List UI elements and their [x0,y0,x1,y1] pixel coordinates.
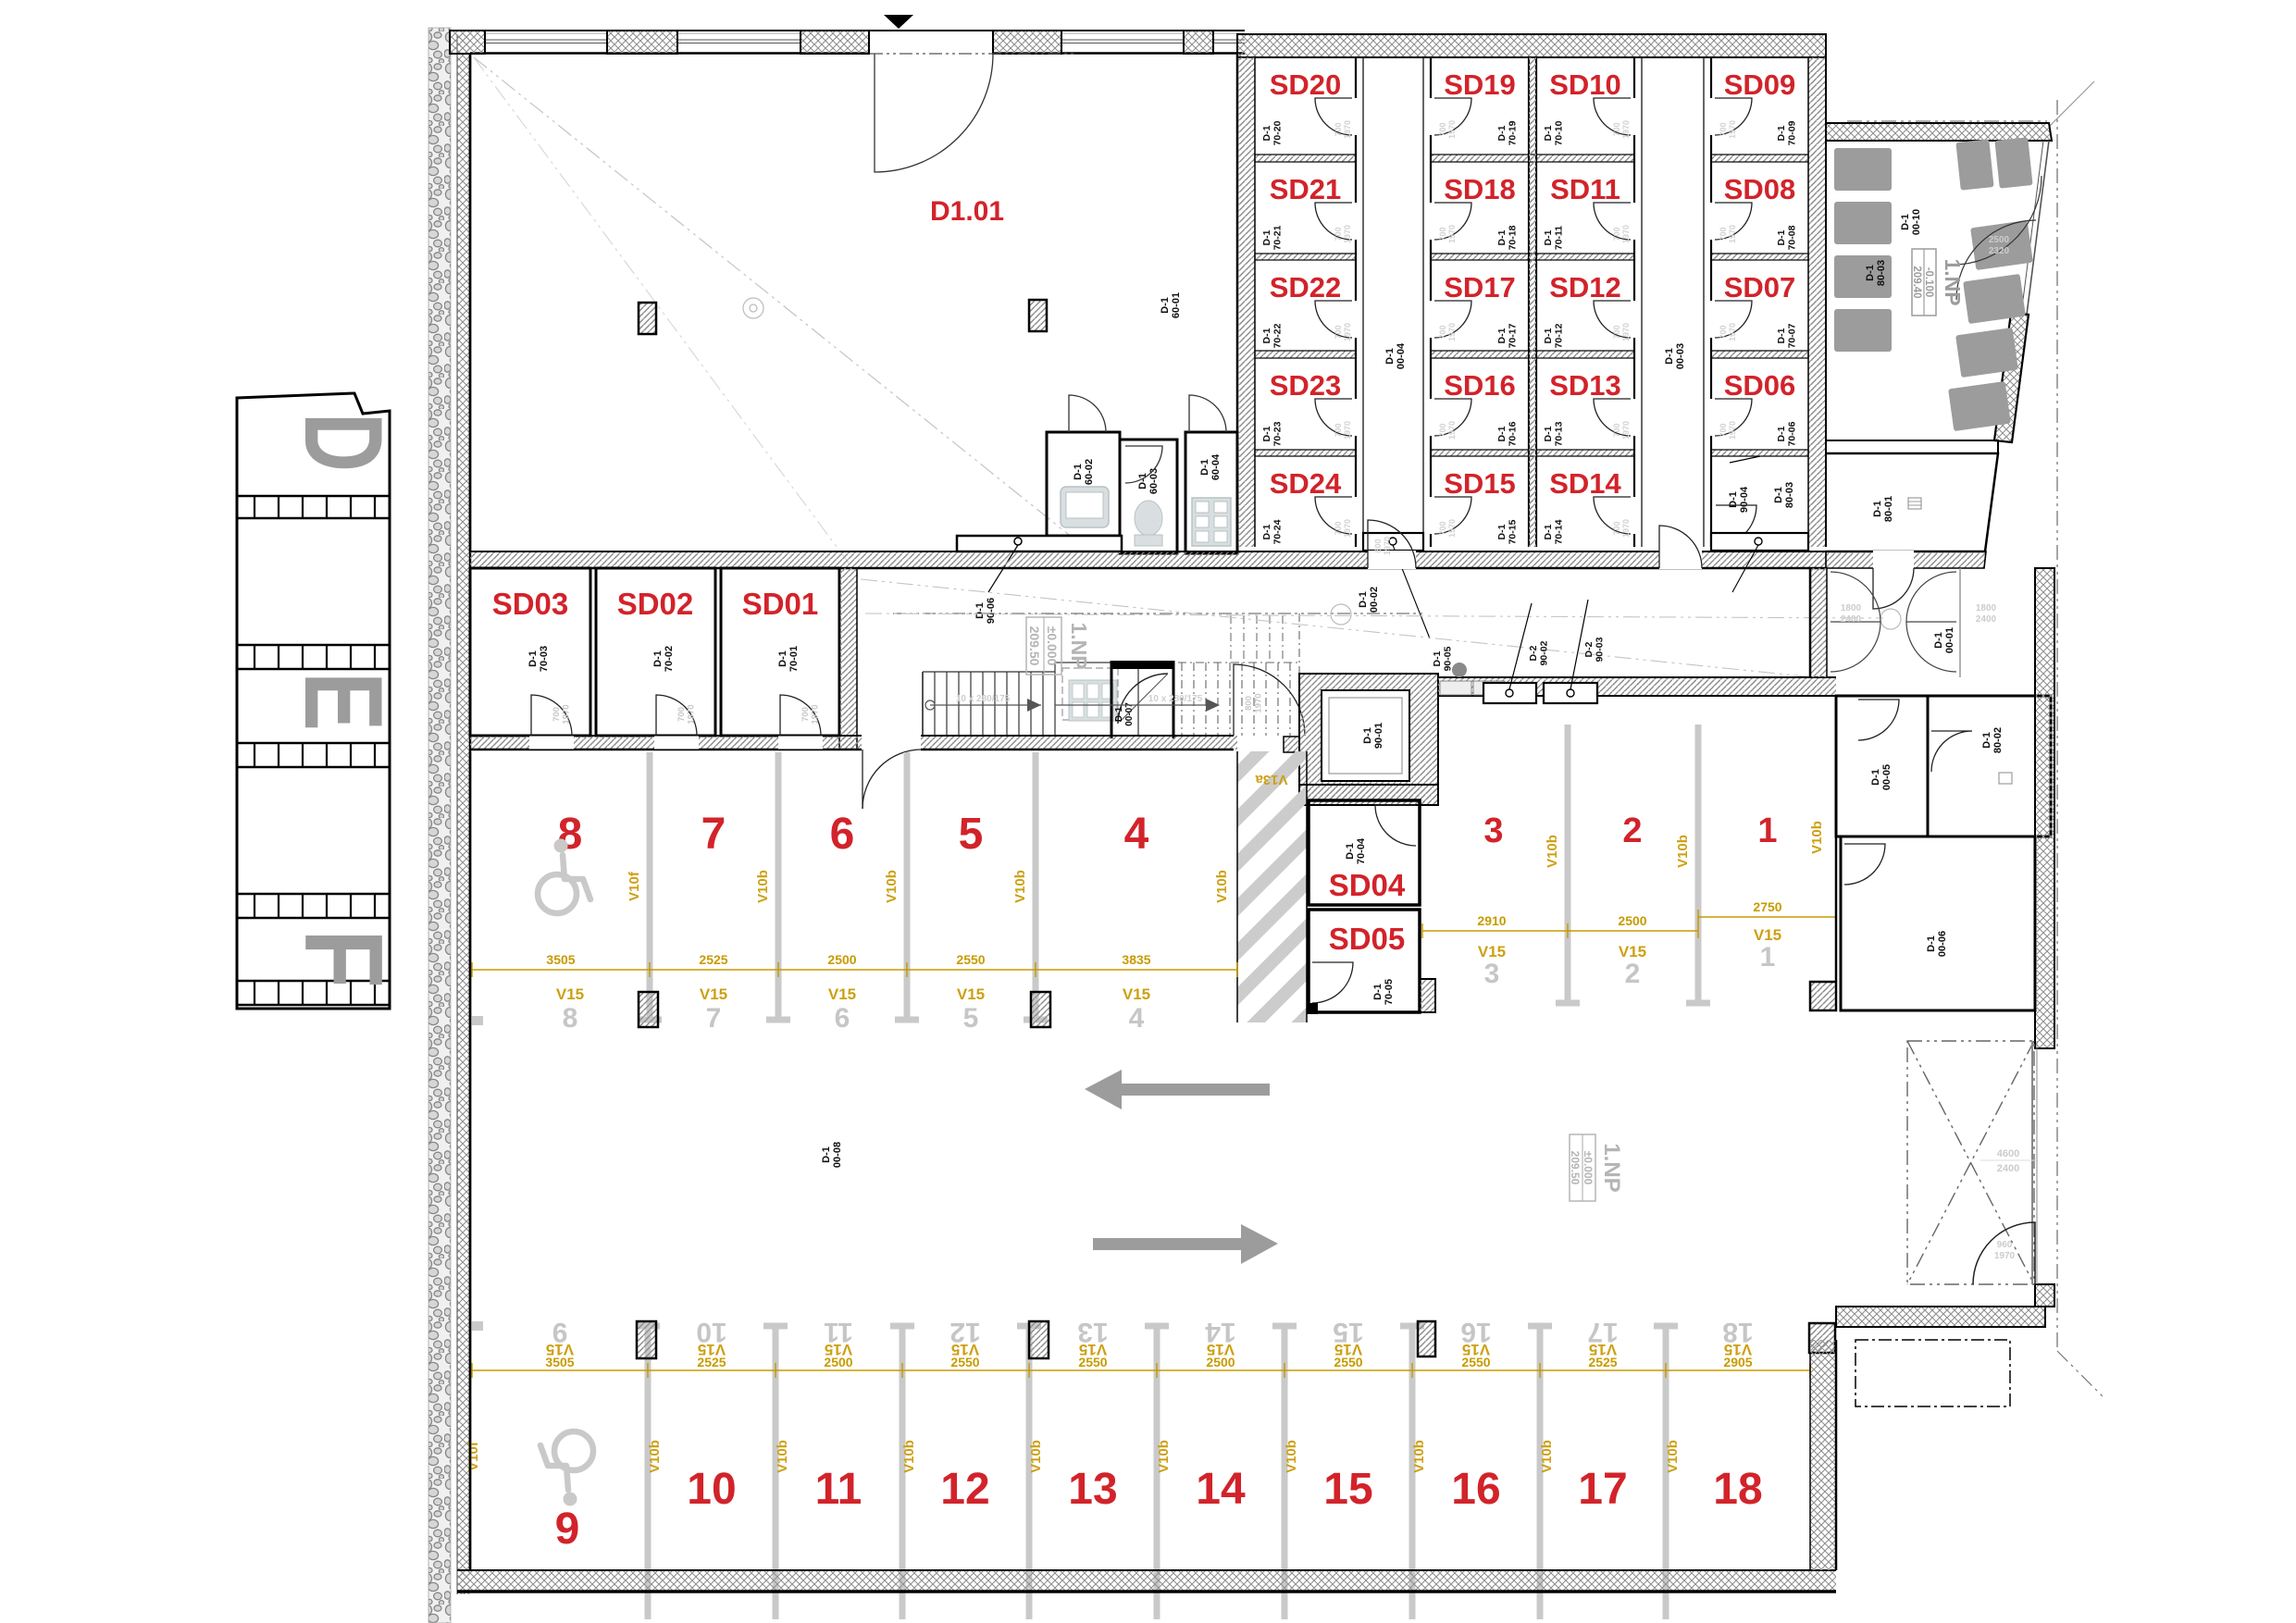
svg-text:16: 16 [1451,1465,1500,1514]
svg-text:12: 12 [940,1465,989,1514]
svg-text:D-1: D-1 [1496,524,1508,539]
svg-text:D-1: D-1 [1160,297,1171,314]
svg-text:10: 10 [687,1465,736,1514]
svg-text:D-1: D-1 [777,650,788,667]
svg-text:1970: 1970 [562,704,572,724]
svg-text:2550: 2550 [1078,1355,1107,1369]
svg-text:70-12: 70-12 [1554,323,1565,348]
svg-text:1800: 1800 [1841,603,1862,613]
svg-text:-0.100: -0.100 [1923,267,1934,298]
svg-text:60-01: 60-01 [1171,292,1182,318]
svg-text:3505: 3505 [546,952,575,967]
svg-text:SD02: SD02 [617,587,694,621]
svg-text:700: 700 [1612,423,1621,437]
svg-text:V10b: V10b [1665,1440,1681,1473]
svg-text:D-1: D-1 [1933,632,1944,649]
svg-text:SD19: SD19 [1444,68,1516,101]
svg-text:D-1: D-1 [1543,229,1554,245]
svg-text:SD23: SD23 [1270,369,1342,402]
svg-text:90-01: 90-01 [1373,723,1384,749]
svg-text:700: 700 [1719,423,1728,437]
svg-text:D-1: D-1 [1872,501,1883,517]
svg-text:V10f: V10f [627,871,642,901]
svg-text:2525: 2525 [699,952,727,967]
svg-text:1970: 1970 [1621,519,1631,538]
svg-text:V10b: V10b [1156,1440,1172,1473]
svg-text:V13a: V13a [1255,772,1288,787]
svg-text:1970: 1970 [1447,323,1457,341]
svg-text:00-04: 00-04 [1396,342,1407,369]
svg-text:1.NP: 1.NP [1067,622,1091,669]
svg-text:80-02: 80-02 [1992,727,2004,753]
svg-text:D-1: D-1 [1137,473,1148,489]
svg-text:70-06: 70-06 [1787,421,1798,446]
svg-text:5: 5 [959,810,984,859]
svg-text:70-22: 70-22 [1272,323,1284,348]
svg-text:D-1: D-1 [1345,843,1356,860]
svg-text:7: 7 [701,810,726,859]
svg-text:SD18: SD18 [1444,173,1516,205]
svg-text:2750: 2750 [1753,899,1781,914]
svg-text:2500: 2500 [1989,235,2010,245]
svg-text:D-1: D-1 [1543,125,1554,141]
svg-text:700: 700 [552,707,562,722]
svg-text:2500: 2500 [1618,913,1646,928]
svg-text:00-01: 00-01 [1944,627,1955,653]
svg-text:700: 700 [1334,325,1343,339]
svg-text:2400: 2400 [1976,614,1997,625]
svg-text:17: 17 [1578,1465,1627,1514]
svg-text:D-1: D-1 [1372,984,1384,1000]
svg-text:00-07: 00-07 [1124,702,1135,726]
svg-text:2910: 2910 [1477,913,1506,928]
svg-text:70-23: 70-23 [1272,421,1284,446]
svg-text:7: 7 [706,1003,722,1034]
svg-text:D-1: D-1 [1073,464,1084,480]
svg-text:2905: 2905 [1723,1355,1752,1369]
svg-text:1800: 1800 [1976,603,1997,613]
svg-text:D-1: D-1 [1773,487,1784,503]
svg-text:1970: 1970 [1343,225,1352,243]
svg-text:V10b: V10b [1545,835,1560,868]
svg-text:D-1: D-1 [1865,265,1876,281]
svg-text:D-1: D-1 [1981,732,1992,749]
svg-text:1970: 1970 [1728,323,1737,341]
svg-text:10 x 280/175: 10 x 280/175 [956,694,1011,704]
svg-text:V10b: V10b [1539,1440,1555,1473]
svg-text:70-11: 70-11 [1554,226,1565,250]
svg-text:00-06: 00-06 [1937,931,1948,957]
svg-text:1970: 1970 [1447,225,1457,243]
svg-text:SD05: SD05 [1329,922,1406,956]
svg-text:700: 700 [1334,227,1343,241]
svg-text:D-1: D-1 [1261,426,1272,441]
svg-text:1970: 1970 [1447,120,1457,139]
svg-text:D-1: D-1 [527,650,539,667]
svg-text:V10b: V10b [901,1440,917,1473]
svg-text:1970: 1970 [1343,421,1352,440]
svg-text:700: 700 [1612,227,1621,241]
svg-text:90-02: 90-02 [1539,640,1550,665]
svg-text:V10b: V10b [1809,821,1825,854]
svg-text:960: 960 [1997,1240,2013,1250]
svg-text:70-14: 70-14 [1554,519,1565,544]
svg-text:700: 700 [1438,325,1447,339]
svg-text:2500: 2500 [824,1355,852,1369]
svg-text:D-1: D-1 [1776,229,1787,245]
svg-text:90-06: 90-06 [986,598,997,624]
svg-text:E: E [281,672,405,731]
svg-text:60-02: 60-02 [1084,459,1095,485]
svg-text:D-1: D-1 [1776,328,1787,343]
svg-text:60-04: 60-04 [1210,453,1222,480]
svg-text:3505: 3505 [545,1355,574,1369]
svg-text:D-1: D-1 [974,602,986,619]
svg-text:4: 4 [1124,810,1149,859]
svg-text:00-03: 00-03 [1675,343,1686,369]
svg-text:D-1: D-1 [1261,229,1272,245]
svg-text:V15: V15 [1123,985,1150,1003]
svg-text:70-17: 70-17 [1508,323,1519,348]
svg-text:2550: 2550 [1334,1355,1362,1369]
svg-text:1970: 1970 [1383,537,1392,555]
svg-text:D-1: D-1 [1199,459,1210,476]
svg-text:6: 6 [830,810,855,859]
svg-text:11: 11 [815,1465,863,1514]
svg-text:3: 3 [1483,811,1503,850]
svg-text:D-1: D-1 [1362,727,1373,744]
svg-text:SD04: SD04 [1329,868,1406,902]
svg-text:90-05: 90-05 [1443,646,1454,671]
svg-text:F: F [281,929,405,988]
svg-text:SD16: SD16 [1444,369,1516,402]
svg-text:1970: 1970 [1621,225,1631,243]
svg-text:V10b: V10b [775,1440,790,1473]
svg-text:00-05: 00-05 [1881,764,1893,790]
svg-text:1970: 1970 [1343,120,1352,139]
svg-text:700: 700 [1719,325,1728,339]
svg-text:15: 15 [1323,1465,1372,1514]
svg-text:70-20: 70-20 [1272,120,1284,145]
svg-text:2: 2 [1625,959,1641,989]
svg-text:3835: 3835 [1122,952,1150,967]
svg-text:700: 700 [1334,423,1343,437]
svg-text:80-01: 80-01 [1883,496,1894,522]
svg-text:10 x 280/175: 10 x 280/175 [1148,694,1203,704]
svg-text:18: 18 [1713,1465,1762,1514]
svg-text:D-1: D-1 [1496,125,1508,141]
svg-text:8: 8 [563,1003,578,1034]
svg-text:D-1: D-1 [1926,935,1937,952]
svg-text:SD07: SD07 [1724,271,1796,304]
svg-text:1970: 1970 [1728,120,1737,139]
svg-text:2400: 2400 [1997,1163,2019,1174]
svg-text:70-04: 70-04 [1356,837,1367,864]
svg-text:209.40: 209.40 [1911,266,1922,298]
svg-text:700: 700 [1719,227,1728,241]
svg-text:70-13: 70-13 [1554,421,1565,446]
svg-text:2320: 2320 [1989,246,2010,256]
svg-text:V10b: V10b [884,870,900,903]
svg-text:SD09: SD09 [1724,68,1796,101]
svg-text:SD22: SD22 [1270,271,1342,304]
svg-text:2500: 2500 [1206,1355,1235,1369]
svg-text:1970: 1970 [1447,519,1457,538]
svg-text:D-1: D-1 [1261,524,1272,539]
svg-text:700: 700 [1438,423,1447,437]
svg-text:3: 3 [1484,959,1500,989]
svg-text:1970: 1970 [811,704,821,724]
svg-text:V10b: V10b [1411,1440,1427,1473]
svg-text:70-02: 70-02 [664,646,675,672]
svg-text:70-21: 70-21 [1272,225,1284,250]
svg-text:D: D [281,413,405,472]
svg-text:1970: 1970 [1343,519,1352,538]
svg-text:6: 6 [835,1003,850,1034]
svg-text:70-18: 70-18 [1508,225,1519,250]
svg-text:1970: 1970 [1621,421,1631,440]
svg-text:D-1: D-1 [1384,348,1396,365]
svg-text:SD08: SD08 [1724,173,1796,205]
svg-text:70-16: 70-16 [1508,421,1519,446]
svg-text:800: 800 [1244,696,1254,711]
svg-text:D-1: D-1 [1496,229,1508,245]
svg-text:5: 5 [963,1003,979,1034]
svg-text:V15: V15 [957,985,985,1003]
svg-text:V10b: V10b [1284,1440,1299,1473]
svg-text:SD10: SD10 [1549,68,1621,101]
svg-text:V15: V15 [828,985,856,1003]
svg-text:2525: 2525 [697,1355,726,1369]
svg-text:90-03: 90-03 [1595,637,1606,662]
svg-text:70-08: 70-08 [1787,225,1798,250]
svg-text:1970: 1970 [1343,323,1352,341]
svg-text:1970: 1970 [687,704,697,724]
svg-text:90-04: 90-04 [1739,486,1750,513]
svg-text:D-1: D-1 [1543,328,1554,343]
svg-text:700: 700 [1719,122,1728,136]
svg-text:±0.000: ±0.000 [1582,1151,1595,1185]
svg-text:V10b: V10b [1012,870,1028,903]
svg-text:V10b: V10b [1028,1440,1044,1473]
svg-text:1970: 1970 [1621,120,1631,139]
svg-text:D-2: D-2 [1583,641,1595,657]
svg-text:80-03: 80-03 [1784,482,1795,508]
svg-text:2550: 2550 [956,952,985,967]
svg-text:13: 13 [1068,1465,1117,1514]
svg-text:70-03: 70-03 [539,646,550,672]
svg-text:1: 1 [1757,811,1777,850]
svg-text:D-1: D-1 [1261,125,1272,141]
svg-text:70-10: 70-10 [1554,120,1565,145]
svg-text:V10b: V10b [647,1440,663,1473]
svg-text:D-1: D-1 [1114,707,1124,723]
svg-text:2500: 2500 [827,952,856,967]
svg-text:V10b: V10b [1214,870,1230,903]
svg-text:700: 700 [1438,521,1447,535]
svg-text:2550: 2550 [1461,1355,1490,1369]
svg-text:D-1: D-1 [821,1146,832,1163]
svg-text:70-07: 70-07 [1787,323,1798,348]
svg-text:D-1: D-1 [1261,328,1272,343]
svg-text:D-1: D-1 [1496,426,1508,441]
svg-text:700: 700 [1438,227,1447,241]
svg-text:D1.01: D1.01 [930,196,1004,227]
svg-text:700: 700 [676,707,687,722]
svg-text:70-15: 70-15 [1508,519,1519,544]
svg-text:D-1: D-1 [1776,125,1787,141]
svg-text:4: 4 [1129,1003,1145,1034]
svg-text:70-01: 70-01 [788,646,800,672]
svg-text:SD12: SD12 [1549,271,1621,304]
svg-text:60-03: 60-03 [1148,468,1160,494]
svg-text:±0.000: ±0.000 [1045,626,1060,666]
svg-text:SD14: SD14 [1549,467,1621,500]
svg-text:1: 1 [1760,942,1776,973]
svg-text:1.NP: 1.NP [1599,1143,1624,1192]
svg-text:V10f: V10f [465,1441,481,1471]
svg-text:209.50: 209.50 [1569,1151,1582,1185]
svg-text:D-1: D-1 [1543,524,1554,539]
svg-text:D-1: D-1 [1496,328,1508,343]
svg-text:D-1: D-1 [1358,591,1369,608]
svg-text:1970: 1970 [1447,421,1457,440]
svg-text:00-10: 00-10 [1911,209,1922,235]
svg-text:SD17: SD17 [1444,271,1516,304]
svg-text:2400: 2400 [1841,614,1862,625]
svg-text:1970: 1970 [1621,323,1631,341]
svg-text:00-02: 00-02 [1369,587,1380,613]
svg-text:00-08: 00-08 [832,1142,843,1168]
svg-text:2525: 2525 [1588,1355,1617,1369]
svg-text:D-1: D-1 [1432,650,1443,666]
svg-text:SD24: SD24 [1270,467,1342,500]
svg-text:700: 700 [1438,122,1447,136]
svg-text:14: 14 [1196,1465,1246,1514]
svg-text:V15: V15 [556,985,584,1003]
svg-text:D-1: D-1 [1900,214,1911,230]
svg-text:SD03: SD03 [492,587,569,621]
svg-text:D-1: D-1 [1776,426,1787,441]
svg-text:700: 700 [1334,521,1343,535]
svg-text:1970: 1970 [1728,421,1737,440]
svg-text:SD13: SD13 [1549,369,1621,402]
svg-text:70-19: 70-19 [1508,120,1519,145]
svg-text:700: 700 [800,707,811,722]
svg-text:9: 9 [555,1505,580,1554]
svg-text:70-24: 70-24 [1272,519,1284,544]
svg-text:209.50: 209.50 [1027,626,1042,666]
svg-text:V10b: V10b [1675,835,1691,868]
svg-text:2: 2 [1622,811,1642,850]
svg-text:D-1: D-1 [1664,348,1675,365]
svg-text:800: 800 [1373,539,1383,552]
svg-text:SD01: SD01 [742,587,819,621]
svg-text:D-1: D-1 [1870,769,1881,786]
svg-text:1.NP: 1.NP [1941,258,1965,305]
svg-text:4600: 4600 [1997,1148,2019,1159]
svg-text:SD06: SD06 [1724,369,1796,402]
svg-text:1970: 1970 [1994,1251,2016,1261]
svg-text:700: 700 [1612,521,1621,535]
svg-text:70-09: 70-09 [1787,120,1798,145]
svg-text:D-1: D-1 [1543,426,1554,441]
svg-text:D-2: D-2 [1528,645,1539,661]
svg-text:1970: 1970 [1728,225,1737,243]
svg-text:SD20: SD20 [1270,68,1342,101]
svg-text:70-05: 70-05 [1384,979,1395,1005]
svg-text:700: 700 [1612,122,1621,136]
svg-text:SD11: SD11 [1550,173,1620,205]
svg-text:1970: 1970 [1254,693,1264,712]
svg-text:SD15: SD15 [1444,467,1516,500]
svg-text:SD21: SD21 [1270,173,1342,205]
svg-text:80-03: 80-03 [1876,260,1887,286]
svg-text:V15: V15 [700,985,727,1003]
svg-text:V10b: V10b [755,870,771,903]
svg-text:700: 700 [1334,122,1343,136]
svg-text:2550: 2550 [950,1355,979,1369]
svg-text:700: 700 [1612,325,1621,339]
svg-text:D-1: D-1 [652,650,664,667]
